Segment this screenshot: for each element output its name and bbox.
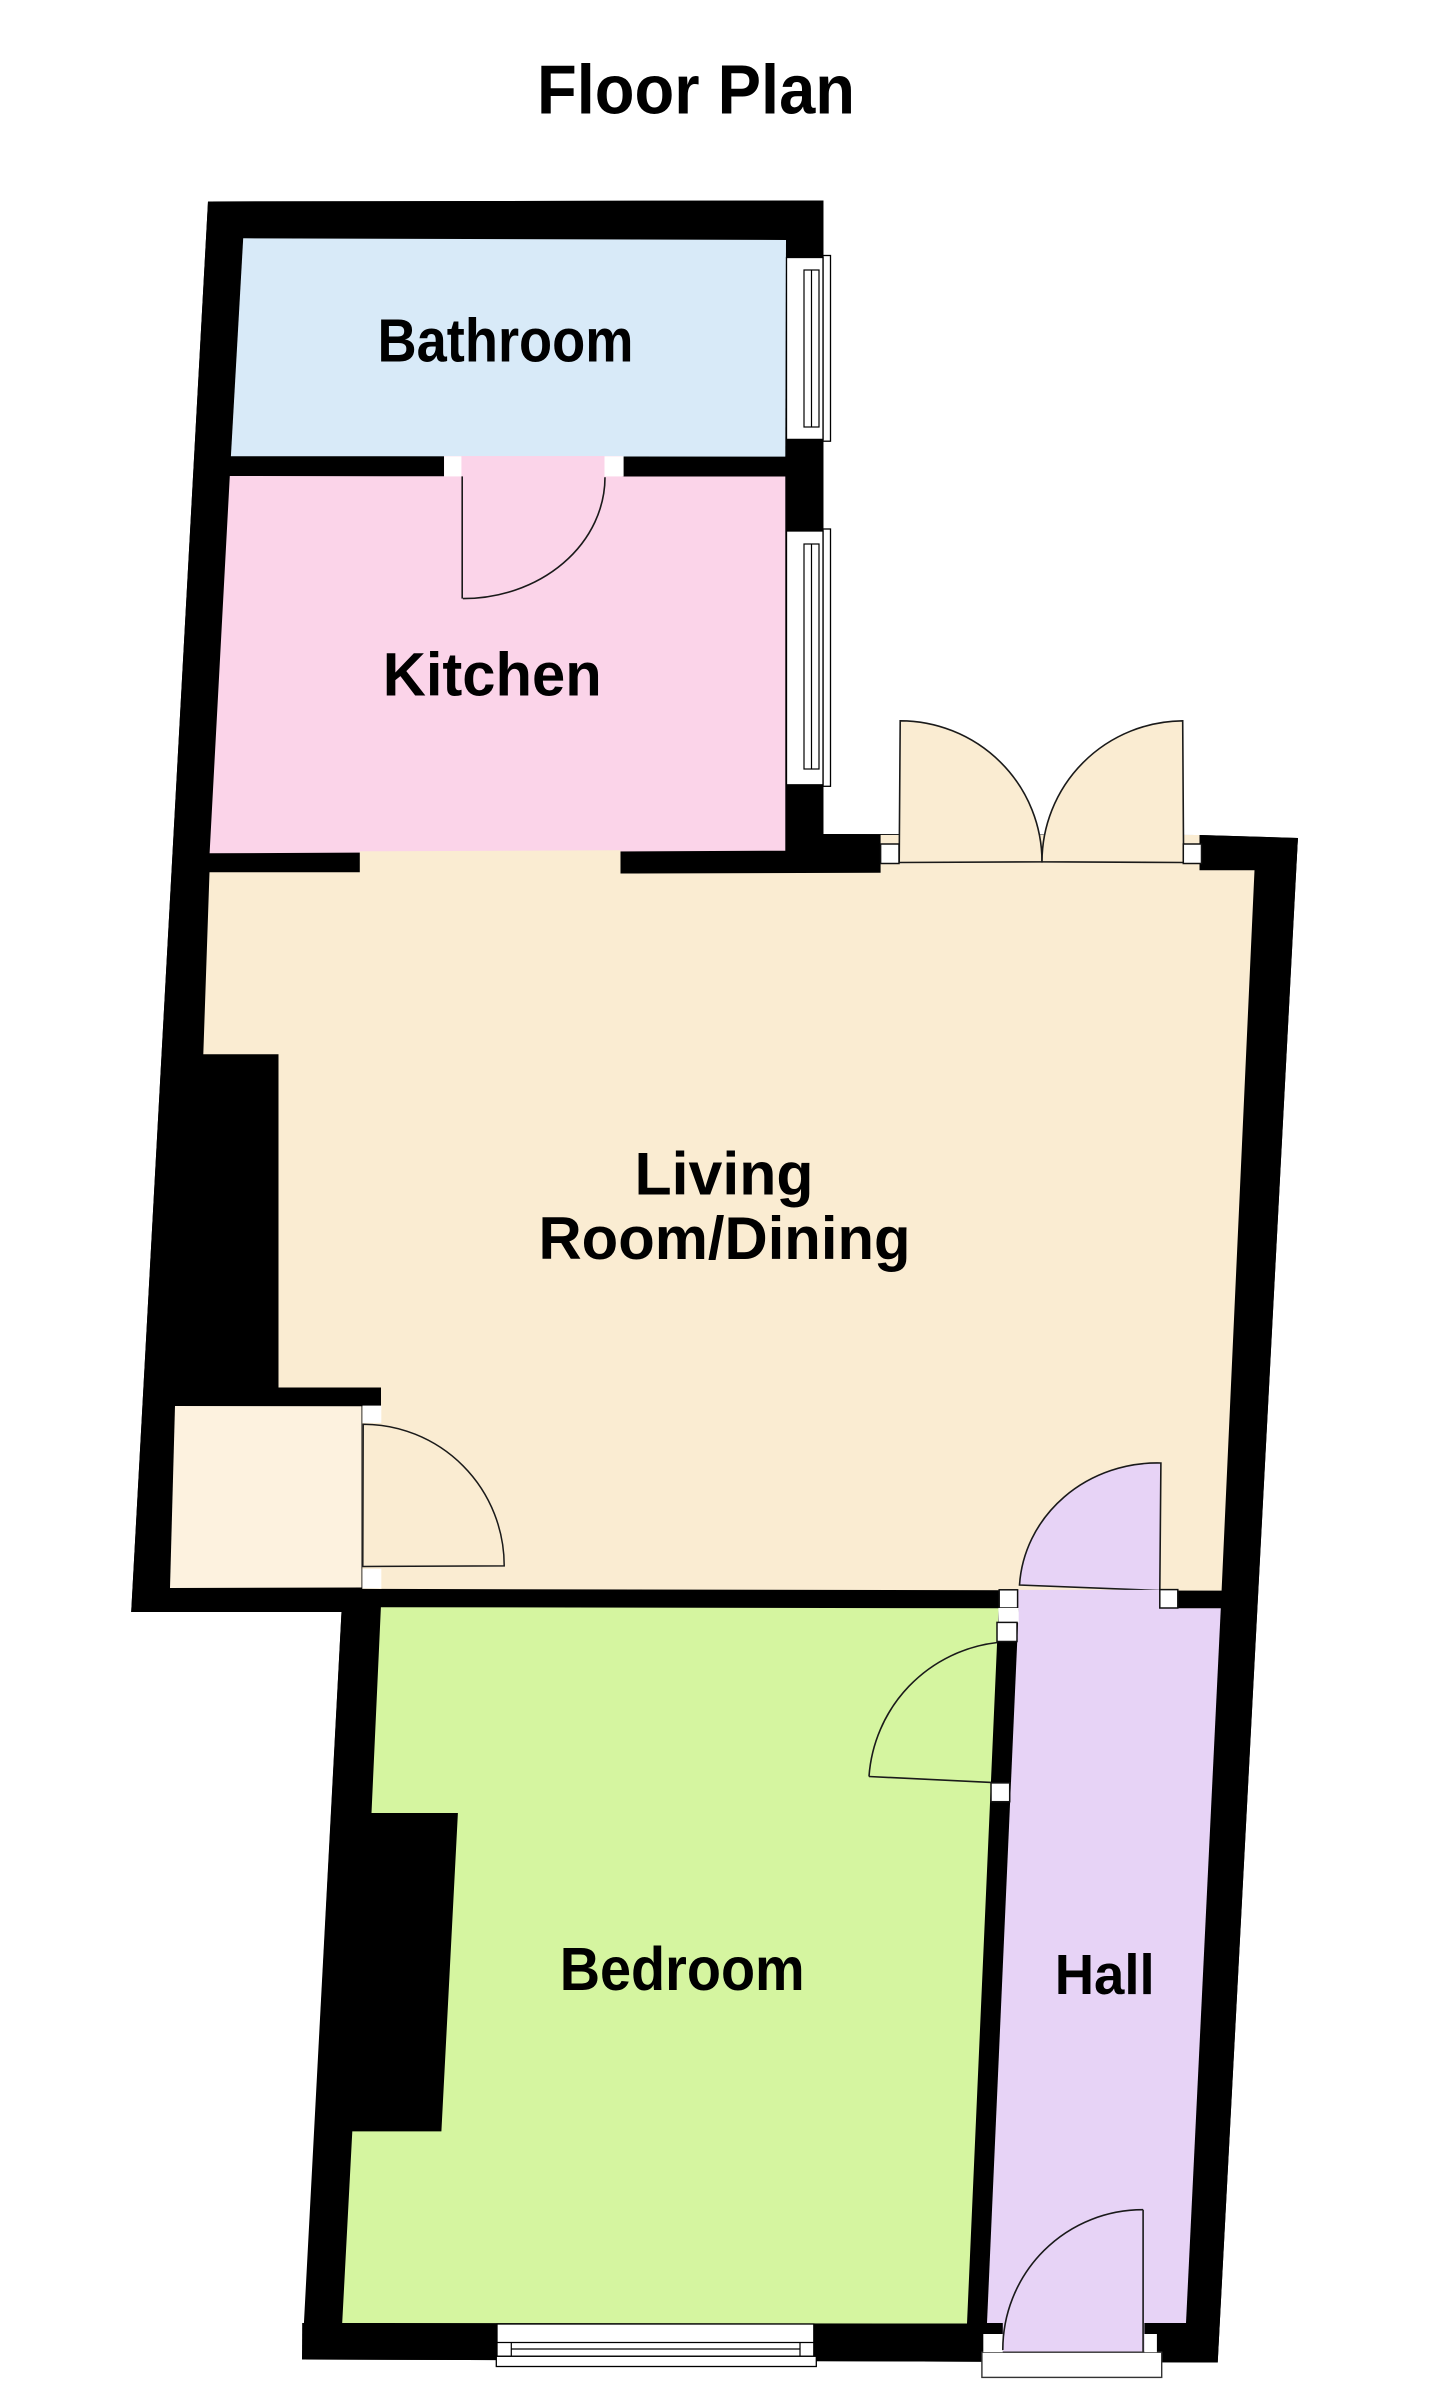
svg-text:Hall: Hall [1055,1943,1155,2007]
svg-text:Floor Plan: Floor Plan [537,51,855,129]
svg-text:Bedroom: Bedroom [560,1935,805,2003]
svg-text:Kitchen: Kitchen [383,640,602,708]
svg-text:Room/Dining: Room/Dining [539,1204,911,1272]
svg-text:Living: Living [635,1140,814,1208]
svg-text:Bathroom: Bathroom [378,307,634,375]
